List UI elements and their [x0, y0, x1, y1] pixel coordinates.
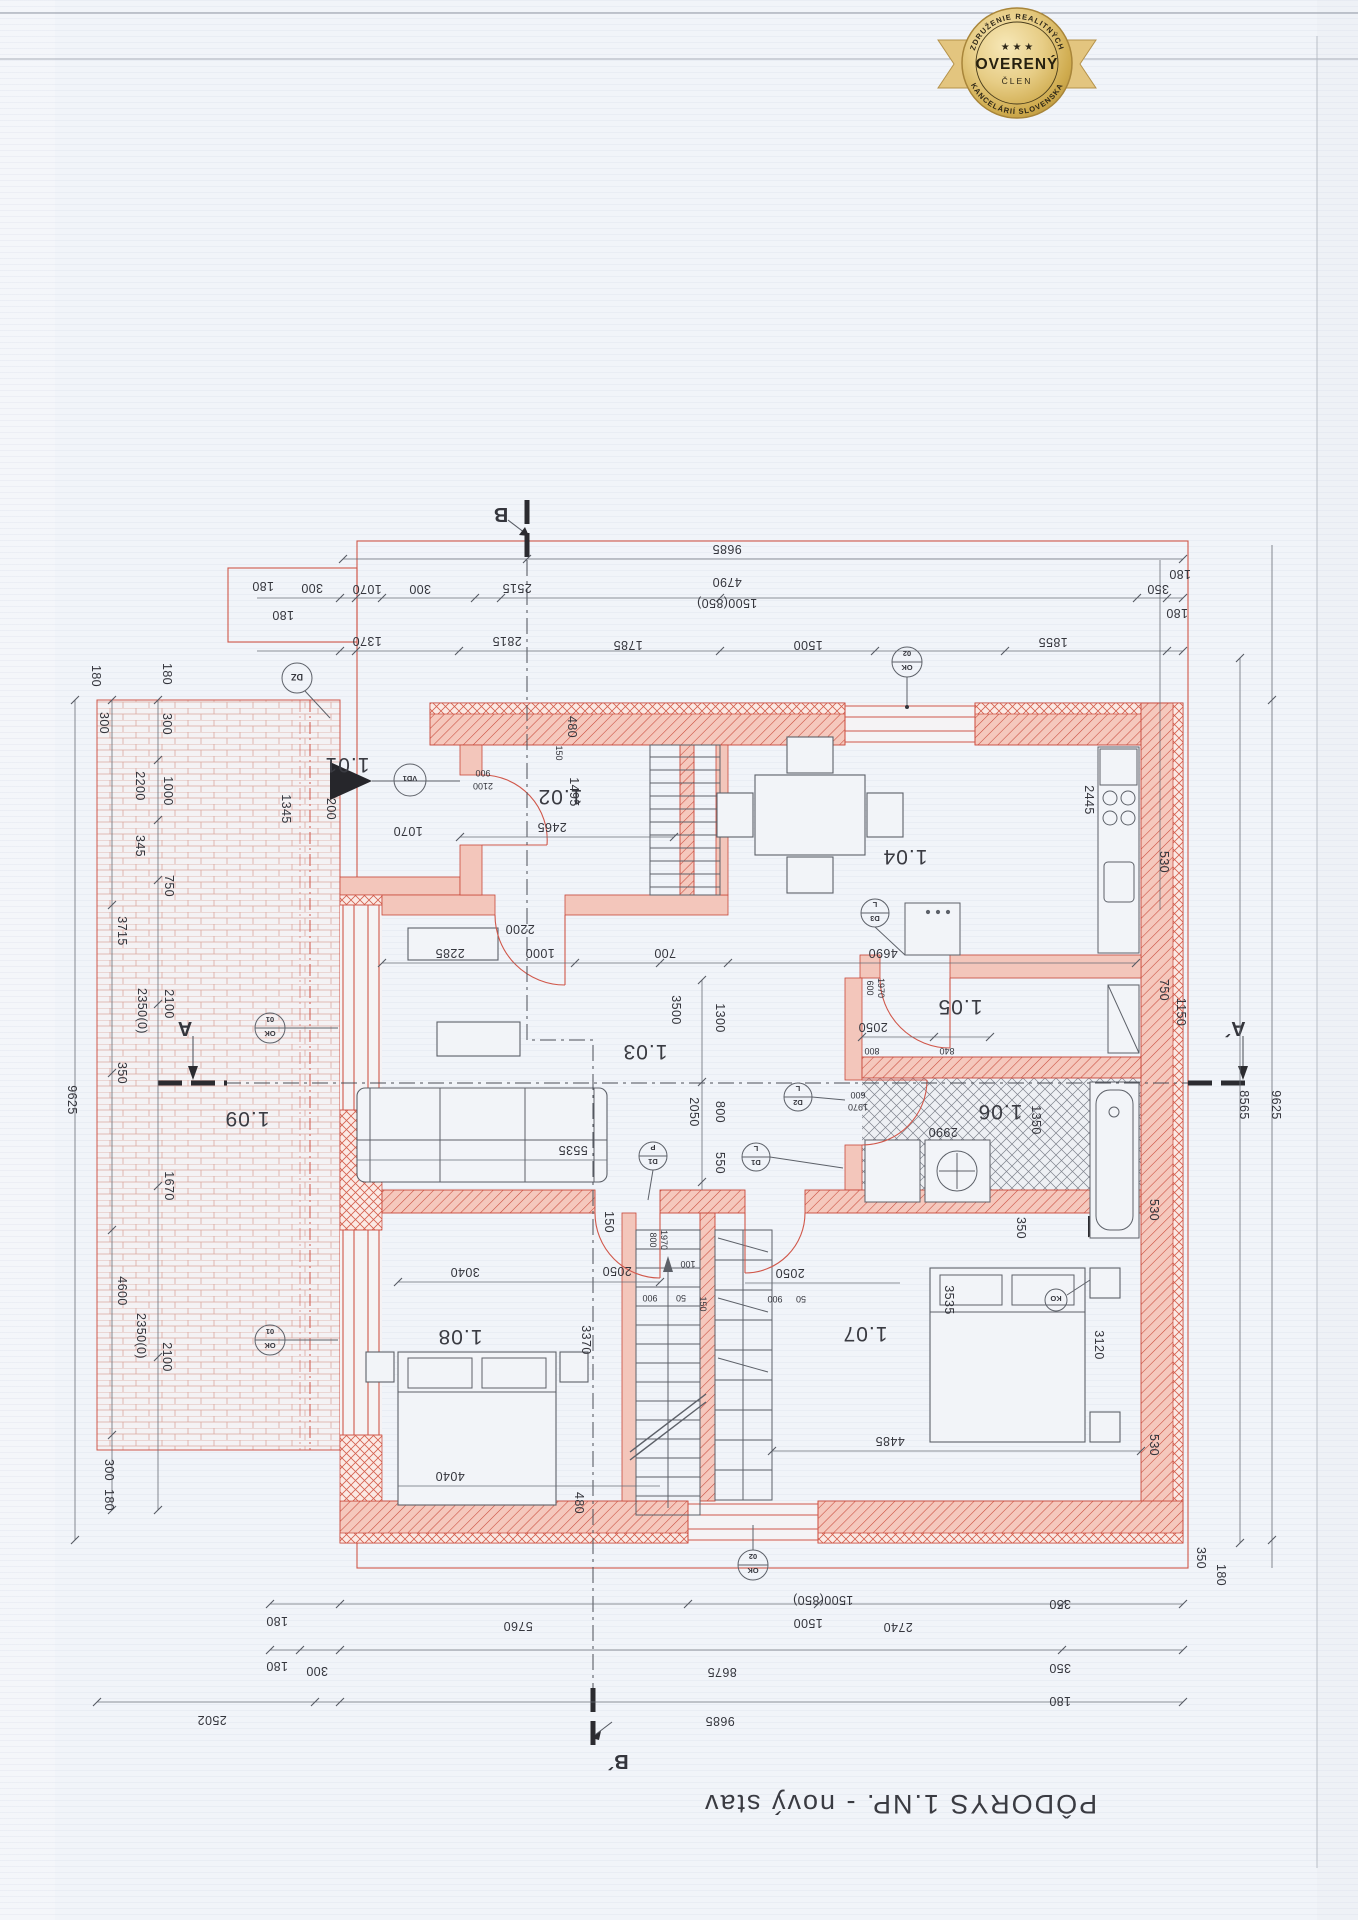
dim-label: 100: [680, 1259, 695, 1269]
dim-label: 1370: [352, 634, 381, 648]
porch-overhang-outline: [228, 568, 357, 642]
dim-label: 350: [1147, 582, 1169, 596]
dim-label: 750: [1157, 979, 1171, 1001]
dim-label: 1350: [1029, 1105, 1043, 1134]
dim-label: 530: [1157, 851, 1171, 873]
room-label-101: 1.01: [325, 753, 370, 776]
dim-label: 9685: [705, 1714, 734, 1728]
verified-badge: ZDRUŽENIE REALITNÝCH KANCELÁRIÍ SLOVENSK…: [938, 8, 1096, 118]
dim-label: 1500: [793, 1616, 822, 1630]
dim-label: 800: [713, 1101, 727, 1123]
dim-label: 700: [654, 946, 676, 960]
dim-label: 1000: [525, 946, 554, 960]
room-label-103: 1.03: [623, 1040, 668, 1063]
dim-label: 3040: [450, 1265, 479, 1279]
dim-label: 840: [939, 1046, 954, 1056]
mark-side: L: [872, 900, 877, 909]
dim-label: 5760: [503, 1619, 532, 1633]
mark-d1: D1: [751, 1158, 761, 1167]
dim-label: 300: [409, 582, 431, 596]
dim-label: 1070: [393, 824, 422, 838]
badge-stars: ★ ★ ★: [1001, 42, 1033, 53]
mark-d2: D2: [793, 1098, 803, 1107]
dim-label: 4600: [115, 1276, 129, 1305]
mark-ok-num: 02: [903, 649, 911, 658]
mark-ok-num: 01: [266, 1327, 274, 1336]
dim-label: 1670: [162, 1171, 176, 1200]
dim-label: 180: [1169, 567, 1191, 581]
plan-group: B B´ A A´ 9685 180 300 1070 300 2515 479…: [65, 500, 1283, 1820]
dim-label: 530: [1147, 1434, 1161, 1456]
dim-label: 2285: [435, 946, 464, 960]
dim-label: 2050: [775, 1266, 804, 1280]
scanned-floorplan-page: B B´ A A´ 9685 180 300 1070 300 2515 479…: [0, 0, 1358, 1920]
dim-label: 1970: [848, 1102, 868, 1112]
dim-label: 2465: [537, 820, 566, 834]
dim-label: 2200: [505, 922, 534, 936]
mark-side: P: [650, 1143, 655, 1152]
dim-label: 180: [252, 579, 274, 593]
dim-label: 9685: [712, 542, 741, 556]
mark-ok-num: 02: [749, 1552, 757, 1561]
dim-label: 3370: [579, 1325, 593, 1354]
dim-label: 1345: [279, 794, 293, 823]
stairs-lower: [630, 1230, 706, 1515]
room-label-109: 1.09: [225, 1107, 270, 1130]
dim-label: 1000: [161, 776, 175, 805]
dim-label: 180: [89, 665, 103, 687]
mark-ok-num: 01: [266, 1015, 274, 1024]
dim-label: 300: [306, 1664, 328, 1678]
dim-label: 180: [1166, 606, 1188, 620]
dim-label: 50: [676, 1293, 686, 1303]
dim-label: 4690: [868, 946, 897, 960]
dim-label: 900: [767, 1294, 782, 1304]
dim-label: 350: [1049, 1597, 1071, 1611]
dim-label: 550: [713, 1152, 727, 1174]
dim-label: 900: [642, 1293, 657, 1303]
dim-label: 3120: [1092, 1330, 1106, 1359]
mark-dz: DZ: [291, 672, 303, 682]
dim-label: 2815: [492, 634, 521, 648]
dim-label: 1150: [1174, 998, 1188, 1026]
mark-ok: OK: [264, 1029, 276, 1038]
dim-label: 8565: [1237, 1090, 1251, 1119]
dim-label: 9625: [1269, 1090, 1283, 1119]
dim-label: 180: [160, 663, 174, 685]
dim-label: 150: [602, 1211, 616, 1233]
section-letter-b: B: [494, 503, 508, 525]
dim-label: 5535: [558, 1143, 587, 1157]
room-label-106: 1.06: [978, 1100, 1023, 1123]
dim-label: 180: [1214, 1564, 1228, 1586]
dim-label: 180: [272, 608, 294, 622]
dim-label: 1970: [659, 1230, 669, 1250]
dim-label: 180: [102, 1489, 116, 1511]
dim-label: 2515: [502, 581, 531, 595]
dim-label: 2502: [197, 1713, 226, 1727]
dim-label: 2050: [687, 1097, 701, 1126]
dim-label: 9625: [65, 1085, 79, 1114]
dim-label: 350: [1014, 1217, 1028, 1239]
dim-label: 1070: [352, 582, 381, 596]
dim-label: 2350(0): [135, 988, 149, 1034]
dim-label: 480: [565, 716, 579, 738]
dim-label: 180: [1049, 1694, 1071, 1708]
badge-member: ČLEN: [1002, 76, 1033, 86]
dim-label: 150: [698, 1296, 708, 1311]
dim-label: 2350(0): [134, 1313, 148, 1359]
dim-label: 1970: [876, 978, 886, 998]
dim-label: 3715: [115, 916, 129, 945]
dim-label: 1855: [1038, 635, 1067, 649]
dim-label: 345: [133, 835, 147, 857]
mark-vd1: VD1: [403, 774, 418, 783]
dim-label: 2100: [162, 989, 176, 1018]
dim-label: 300: [160, 713, 174, 735]
dim-label: 350: [115, 1062, 129, 1084]
dim-label: 300: [102, 1459, 116, 1481]
dim-label: 2740: [883, 1620, 912, 1634]
dim-label: 2100: [473, 781, 493, 791]
mark-ok: OK: [901, 663, 913, 672]
dim-label: 1300: [713, 1003, 727, 1032]
dim-label: 600: [865, 980, 875, 995]
section-letter-a2: A´: [1224, 1017, 1245, 1039]
dim-label: 180: [266, 1659, 288, 1673]
dim-label: 750: [162, 875, 176, 897]
bed-107: [930, 1268, 1120, 1442]
bed-108: [366, 1352, 588, 1505]
dim-label: 150: [554, 745, 564, 760]
mark-side: L: [795, 1084, 800, 1093]
section-letter-a: A: [178, 1017, 192, 1039]
dim-label: 480: [572, 1492, 586, 1514]
badge-title: OVERENÝ: [976, 55, 1059, 73]
dim-label: 2050: [858, 1020, 887, 1034]
dim-label: 200: [324, 798, 338, 820]
floorplan-drawing: B B´ A A´ 9685 180 300 1070 300 2515 479…: [0, 0, 1358, 1920]
dim-label: 1500(850): [697, 596, 758, 610]
dim-label: 2100: [160, 1342, 174, 1371]
terrace: [97, 700, 340, 1450]
dim-label: 800: [864, 1046, 879, 1056]
dining-table-set: [717, 737, 903, 893]
dim-label: 350: [1194, 1547, 1208, 1569]
mark-ok: OK: [264, 1341, 276, 1350]
drawing-title: PÔDORYS 1.NP. - nový stav: [703, 1789, 1097, 1820]
dim-label: 350: [1049, 1661, 1071, 1675]
dim-label: 3500: [669, 995, 683, 1024]
section-letter-b2: B´: [607, 1750, 628, 1772]
dim-label: 50: [796, 1294, 806, 1304]
room-label-104: 1.04: [883, 845, 928, 868]
dim-label: 300: [301, 581, 323, 595]
mark-d1: D1: [648, 1157, 658, 1166]
dim-label: 900: [475, 768, 490, 778]
room-label-102: 1.02: [538, 785, 583, 808]
dim-label: 2200: [133, 771, 147, 800]
dim-label: 2050: [602, 1264, 631, 1278]
mark-ok: OK: [747, 1566, 759, 1575]
dim-label: 3535: [942, 1285, 956, 1314]
room-label-105: 1.05: [938, 995, 983, 1018]
room-label-107: 1.07: [843, 1322, 888, 1345]
dim-label: 530: [1147, 1199, 1161, 1221]
dim-label: 1500(850): [793, 1593, 854, 1607]
mark-d3: D3: [870, 914, 880, 923]
dim-label: 800: [648, 1232, 658, 1247]
dim-label: 2990: [928, 1125, 957, 1139]
dim-label: 4790: [712, 575, 741, 589]
dim-label: 8675: [707, 1665, 736, 1679]
dim-label: 4040: [435, 1469, 464, 1483]
dim-label: 1785: [613, 638, 642, 652]
dim-label: 1500: [793, 638, 822, 652]
dim-label: 300: [97, 712, 111, 734]
mark-side: L: [753, 1144, 758, 1153]
dim-label: 2445: [1082, 785, 1096, 814]
dim-label: 4485: [875, 1434, 904, 1448]
room-label-108: 1.08: [438, 1325, 483, 1348]
kitchen-counter: [905, 747, 1139, 955]
dim-label: 180: [266, 1614, 288, 1628]
mark-ko: KO: [1050, 1294, 1061, 1303]
dim-label: 600: [850, 1090, 865, 1100]
